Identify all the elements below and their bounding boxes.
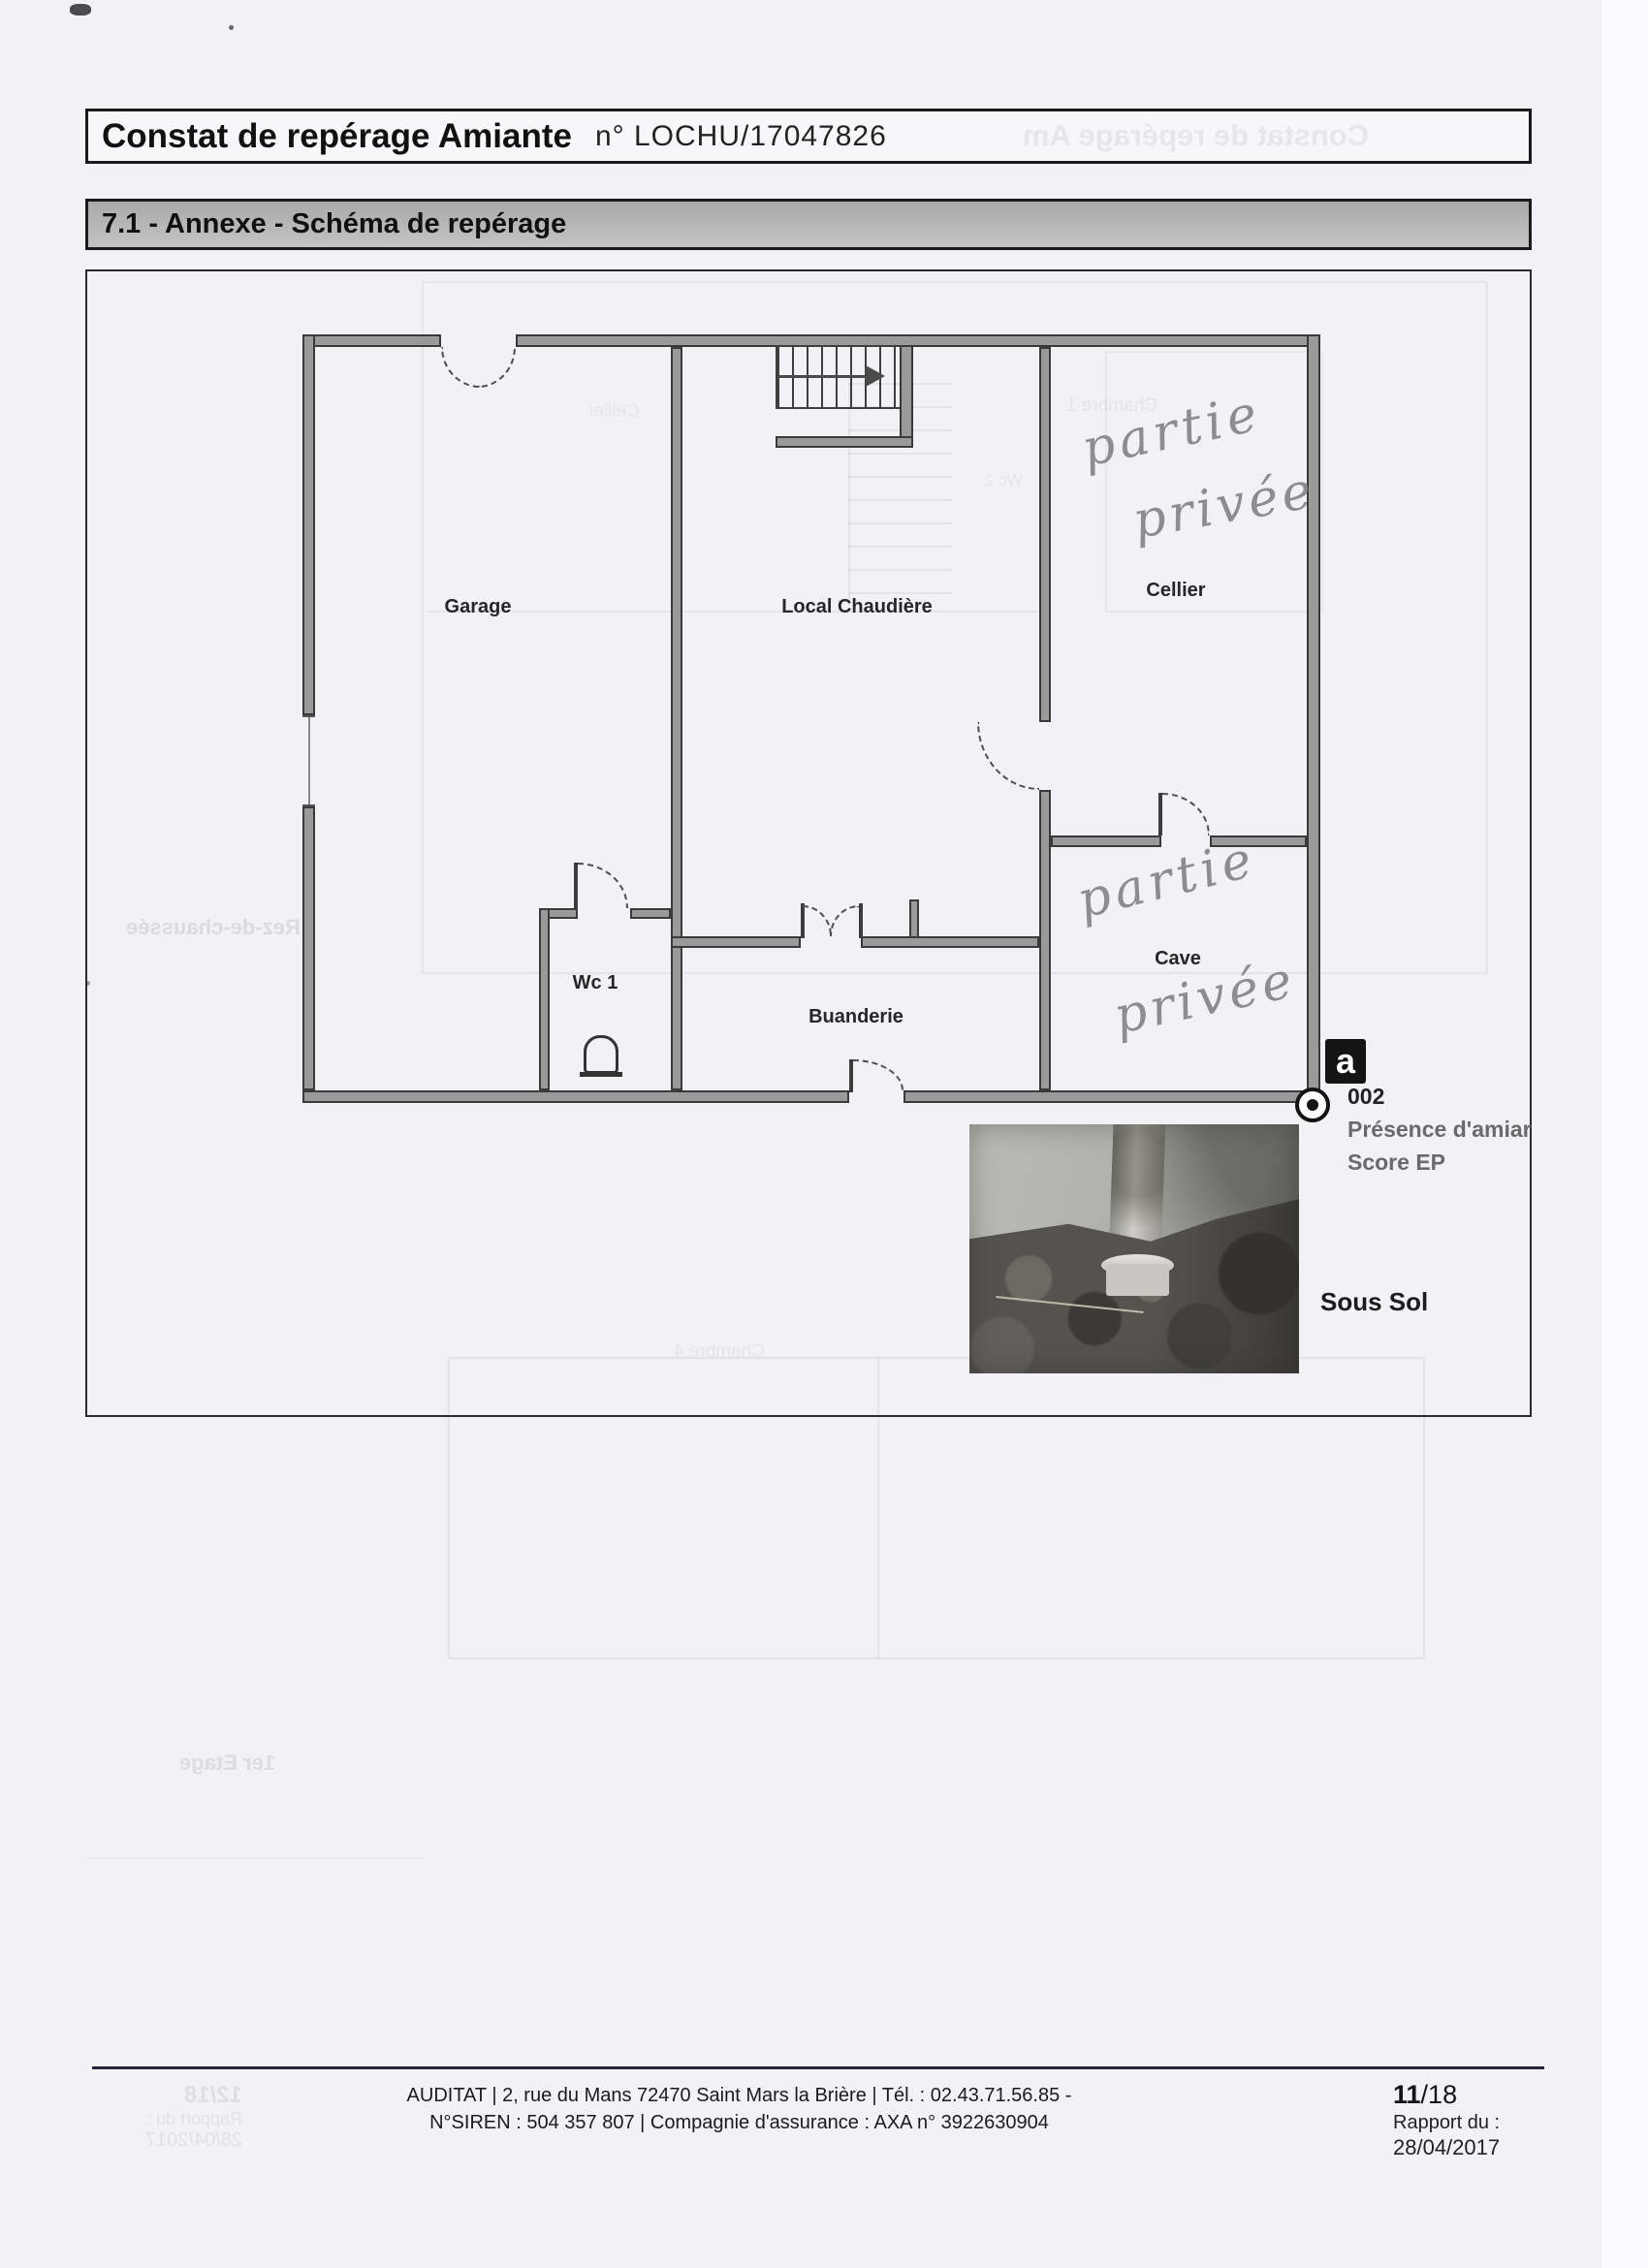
sample-id: 002 bbox=[1347, 1084, 1384, 1110]
photo-vignette bbox=[969, 1124, 1299, 1373]
stairs-wall-vertical bbox=[900, 345, 913, 448]
room-label-buanderie: Buanderie bbox=[808, 1006, 903, 1028]
scanned-report-page: Constat de repérage Amiante n° LOCHU/170… bbox=[0, 0, 1648, 2268]
sample-score: Score EP bbox=[1347, 1150, 1534, 1176]
bleedthrough-label-1er-etage: 1er Etage bbox=[179, 1750, 275, 1776]
scan-artifact-dot bbox=[229, 25, 234, 30]
wall-top-right bbox=[516, 334, 1320, 347]
room-label-cave: Cave bbox=[1155, 948, 1201, 970]
page-total: /18 bbox=[1421, 2080, 1458, 2109]
toilet-base-icon bbox=[580, 1072, 622, 1077]
sample-point-icon bbox=[1295, 1087, 1330, 1122]
bleedthrough-plan2-outline bbox=[448, 1357, 1425, 1659]
wall-garage-chaufferie bbox=[671, 347, 682, 1090]
wall-chaufferie-buanderie-left bbox=[671, 936, 801, 948]
wc1-wall-left bbox=[539, 908, 550, 1090]
room-label-cellier: Cellier bbox=[1146, 580, 1205, 602]
bleedthrough-line bbox=[87, 1857, 422, 1859]
stairs-direction-line bbox=[779, 375, 869, 378]
asbestos-marker-icon: a bbox=[1325, 1039, 1366, 1084]
wall-cellier-cave-left bbox=[1051, 835, 1161, 847]
bleedthrough-label-rdc: Rez-de-chaussée bbox=[126, 915, 301, 940]
wall-step-stub bbox=[909, 899, 919, 938]
bleedthrough-footer-page: 12/18 Rapport du : 28/04/2017 bbox=[97, 2082, 242, 2152]
wall-right bbox=[1307, 334, 1320, 1103]
site-photo bbox=[969, 1124, 1299, 1373]
sample-description: Présence d'amiar bbox=[1347, 1117, 1534, 1143]
bleedthrough-report-date: 28/04/2017 bbox=[97, 2129, 242, 2152]
bleedthrough-label-cellier: Cellier bbox=[587, 401, 640, 423]
window-left-wall bbox=[302, 715, 315, 806]
report-date: 28/04/2017 bbox=[1393, 2135, 1500, 2160]
bleedthrough-label-wc2: Wc 2 bbox=[985, 471, 1023, 490]
toilet-icon bbox=[584, 1035, 618, 1074]
footer-line1: AUDITAT | 2, rue du Mans 72470 Saint Mar… bbox=[320, 2082, 1158, 2109]
footer-line2: N°SIREN : 504 357 807 | Compagnie d'assu… bbox=[320, 2109, 1158, 2136]
footer-address-block: AUDITAT | 2, rue du Mans 72470 Saint Mar… bbox=[320, 2082, 1158, 2136]
scan-artifact-blob bbox=[70, 4, 91, 16]
footer-page-block: 11/18 Rapport du : 28/04/2017 bbox=[1393, 2080, 1500, 2160]
room-label-wc1: Wc 1 bbox=[573, 972, 618, 994]
footer-separator bbox=[92, 2066, 1544, 2069]
report-title: Constat de repérage Amiante bbox=[102, 117, 572, 156]
room-label-local-chaudiere: Local Chaudière bbox=[781, 596, 933, 618]
report-date-label: Rapport du : bbox=[1393, 2110, 1500, 2135]
wall-top-left bbox=[302, 334, 441, 347]
page-current: 11 bbox=[1393, 2080, 1421, 2109]
wall-bottom-left bbox=[302, 1090, 849, 1103]
bleedthrough-header-title: Constat de repérage Am bbox=[1023, 118, 1369, 153]
wall-bottom-right bbox=[903, 1090, 1320, 1103]
bleedthrough-label-chambre4: Chambre 4 bbox=[674, 1341, 765, 1363]
wall-left-lower bbox=[302, 806, 315, 1090]
wall-left-upper bbox=[302, 334, 315, 715]
bleedthrough-report-label: Rapport du : bbox=[97, 2109, 242, 2129]
section-bar: 7.1 - Annexe - Schéma de repérage bbox=[85, 199, 1532, 250]
level-label: Sous Sol bbox=[1320, 1287, 1428, 1317]
section-title: 7.1 - Annexe - Schéma de repérage bbox=[102, 208, 566, 240]
stairs-direction-arrow-icon bbox=[866, 365, 885, 387]
wall-chaufferie-cellier-upper bbox=[1039, 347, 1051, 722]
room-label-garage: Garage bbox=[445, 596, 512, 618]
scan-edge-strip bbox=[1601, 0, 1648, 2268]
wall-chaufferie-cave-lower bbox=[1039, 790, 1051, 1090]
bleedthrough-line bbox=[877, 1357, 879, 1659]
double-door-leaf-right bbox=[859, 903, 863, 938]
bleedthrough-page-number: 12/18 bbox=[97, 2082, 242, 2109]
wall-chaufferie-buanderie-right bbox=[861, 936, 1039, 948]
page-number: 11/18 bbox=[1393, 2080, 1500, 2110]
stairs-wall-return bbox=[776, 436, 913, 448]
bleedthrough-line bbox=[427, 611, 1037, 613]
wc1-wall-top-right bbox=[630, 908, 671, 919]
report-number: n° LOCHU/17047826 bbox=[595, 120, 887, 153]
